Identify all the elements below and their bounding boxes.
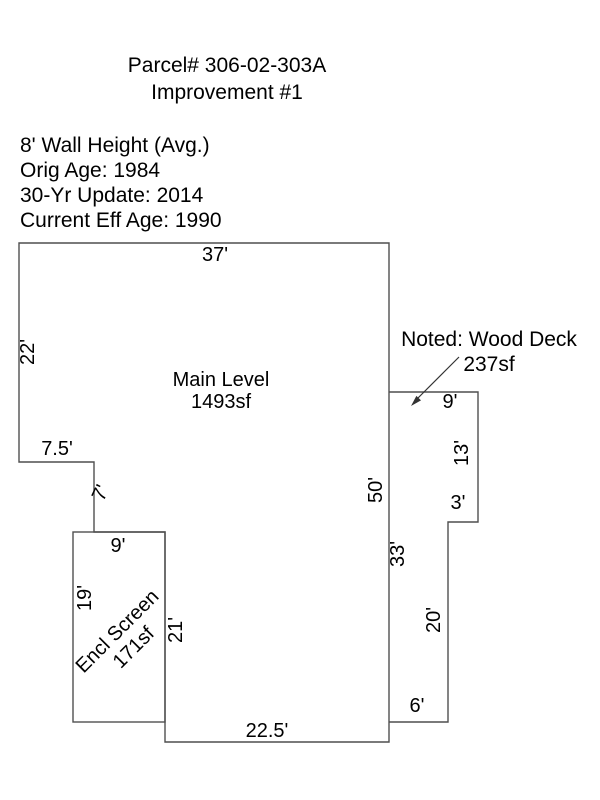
main-level-area: 1493sf	[173, 391, 270, 413]
wall-height-line: 8' Wall Height (Avg.)	[20, 133, 222, 158]
wood-deck-note: Noted: Wood Deck 237sf	[401, 327, 577, 377]
dim-main-top: 37'	[202, 244, 228, 266]
improvement-subtitle: Improvement #1	[98, 79, 356, 106]
dim-deck-step: 3'	[451, 492, 466, 514]
dim-deck-bottom: 6'	[410, 695, 425, 717]
dim-main-right: 50'	[365, 477, 387, 503]
property-info: 8' Wall Height (Avg.) Orig Age: 1984 30-…	[20, 133, 222, 233]
dim-deck-left: 33'	[387, 541, 409, 567]
page-header: Parcel# 306-02-303A Improvement #1	[98, 52, 356, 106]
dim-deck-lower-right: 20'	[423, 607, 445, 633]
parcel-title: Parcel# 306-02-303A	[98, 52, 356, 79]
main-level-label: Main Level 1493sf	[173, 369, 270, 413]
dim-step-width: 7.5'	[41, 438, 73, 460]
wood-deck-note-text: Noted: Wood Deck	[401, 327, 577, 352]
wood-deck-area: 237sf	[401, 352, 577, 377]
sketch-page: Parcel# 306-02-303A Improvement #1 8' Wa…	[0, 0, 600, 800]
dim-screen-left: 19'	[74, 585, 96, 611]
main-level-name: Main Level	[173, 369, 270, 391]
dim-deck-right: 13'	[451, 440, 473, 466]
deck-note-arrowhead	[411, 396, 421, 406]
main-level-outline	[19, 243, 389, 742]
orig-age-line: Orig Age: 1984	[20, 158, 222, 183]
dim-main-left: 22'	[17, 339, 39, 365]
dim-screen-top: 9'	[111, 535, 126, 557]
update-30yr-line: 30-Yr Update: 2014	[20, 183, 222, 208]
dim-main-lower-left: 21'	[165, 617, 187, 643]
current-eff-age-line: Current Eff Age: 1990	[20, 208, 222, 233]
dim-main-bottom: 22.5'	[246, 720, 289, 742]
dim-deck-top: 9'	[443, 391, 458, 413]
